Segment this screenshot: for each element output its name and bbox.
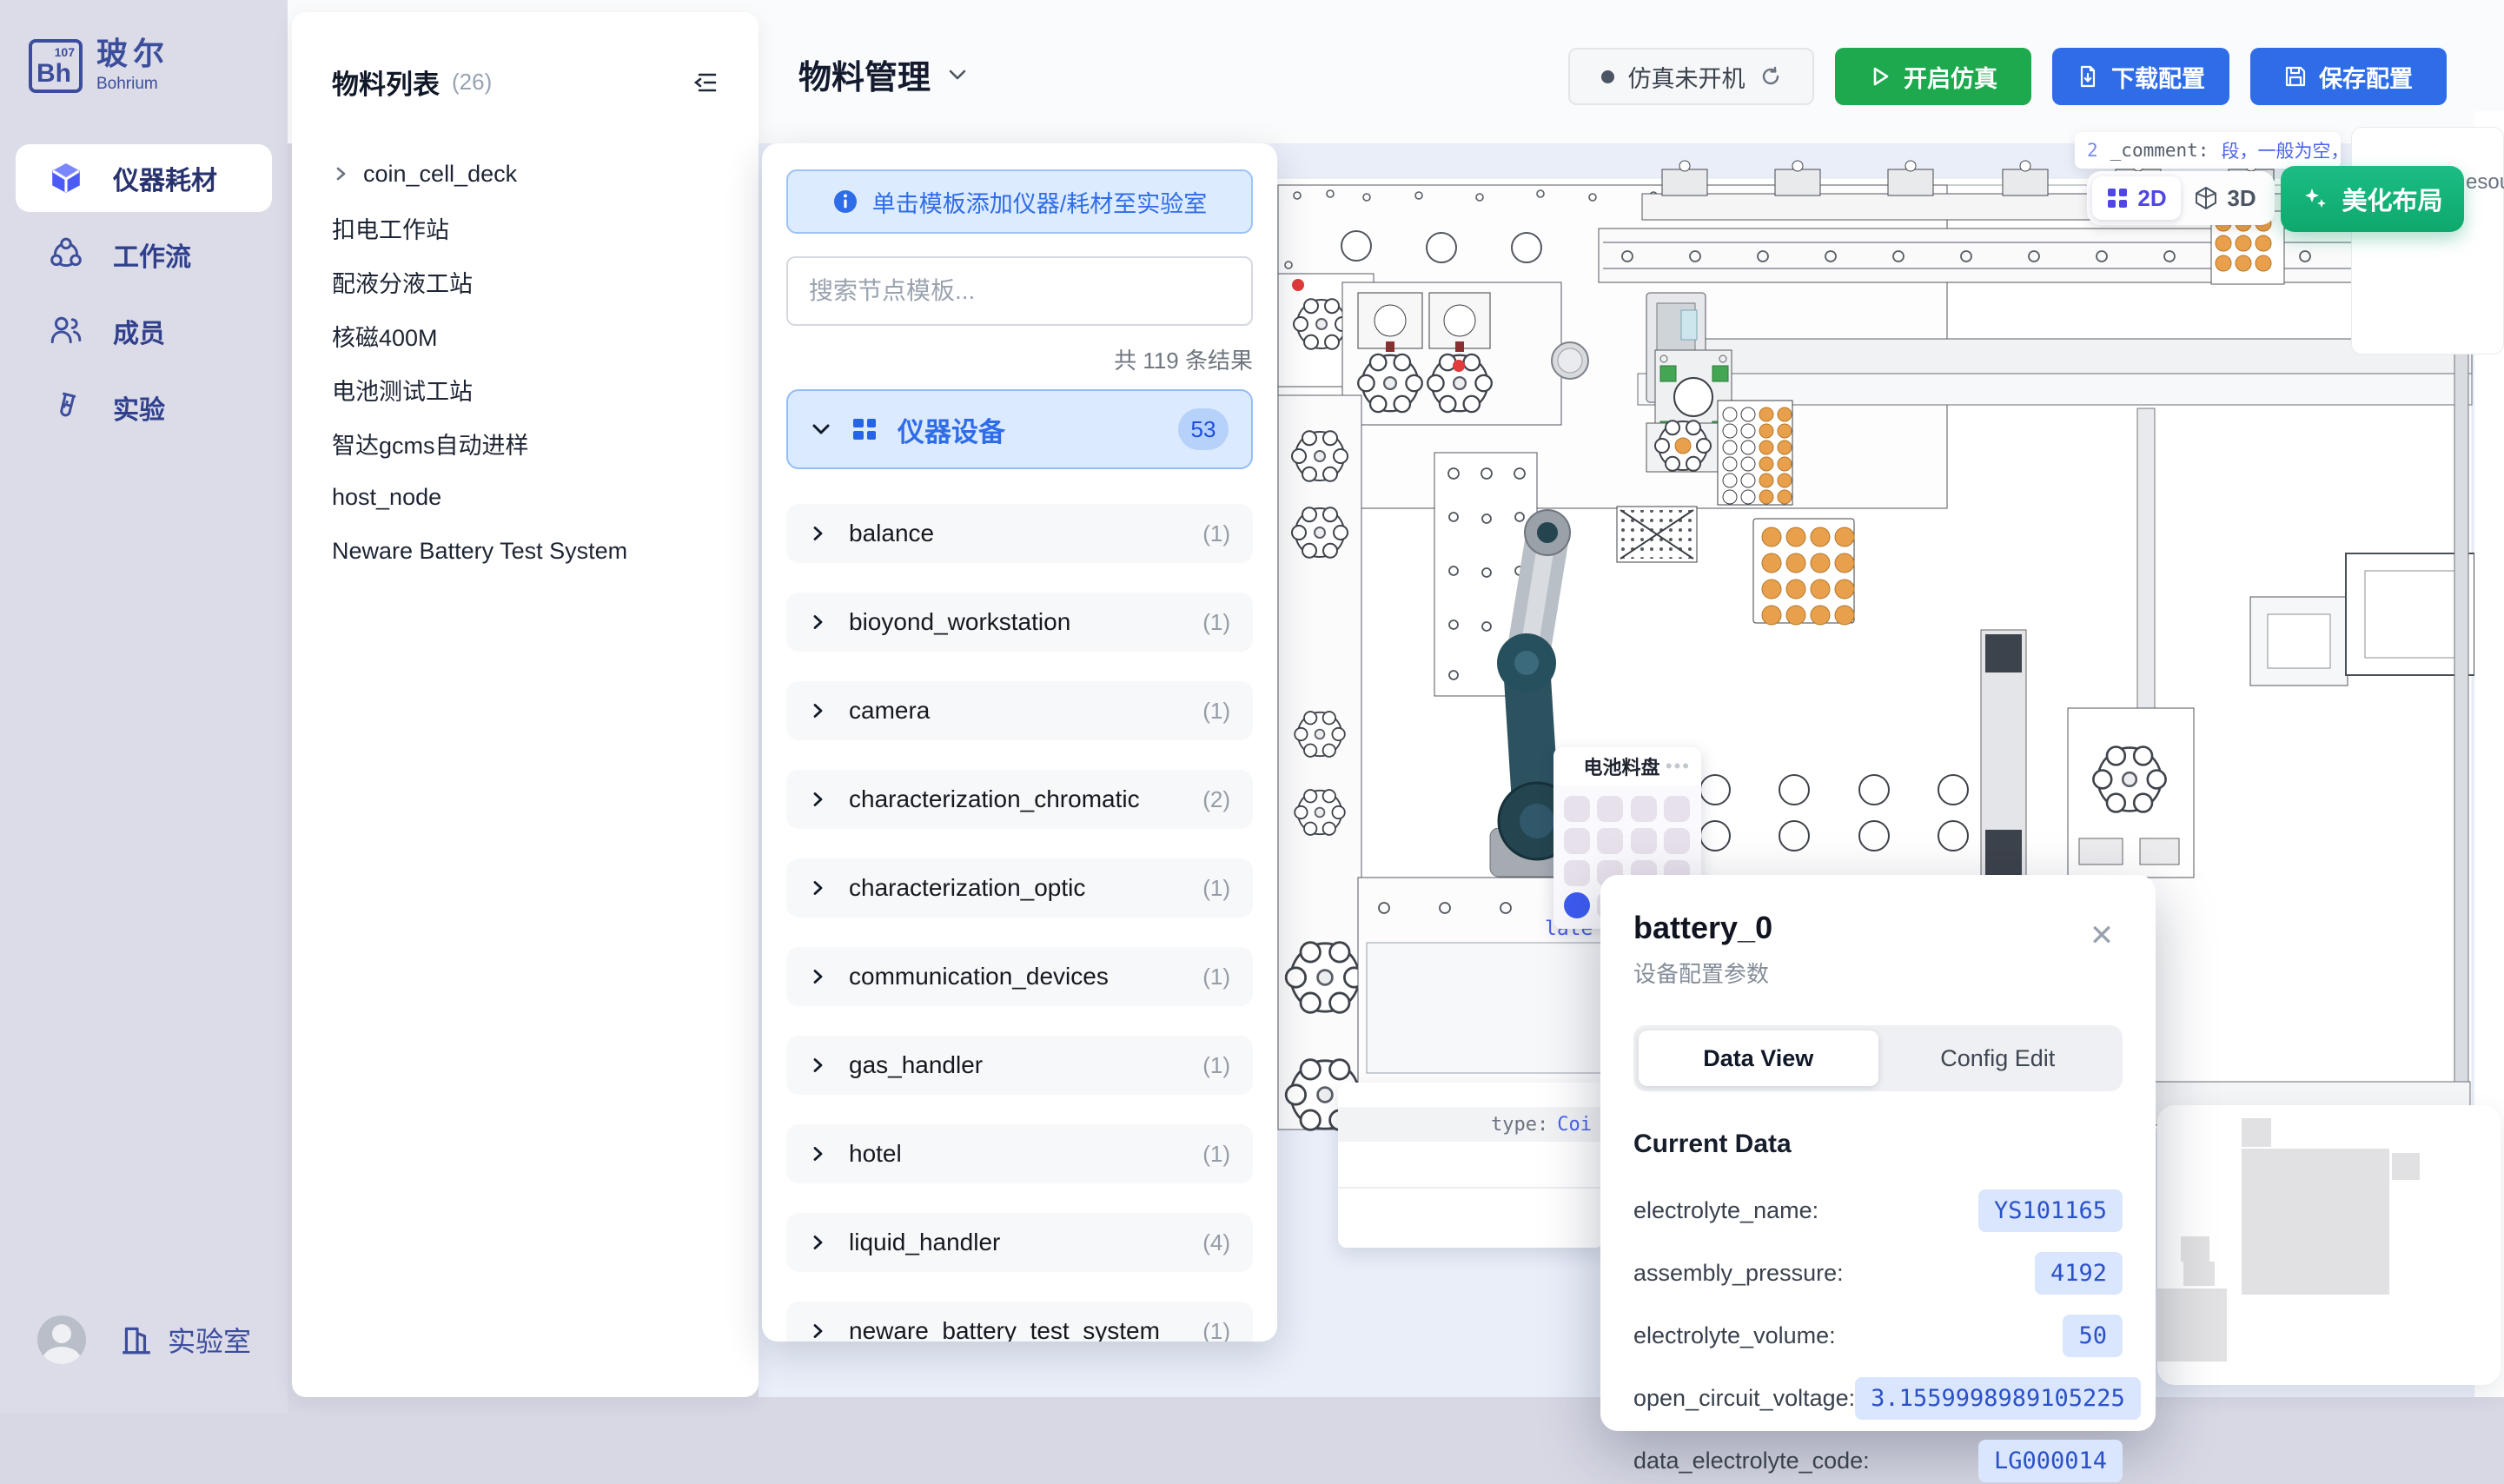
data-row-label: electrolyte_name: — [1633, 1197, 1818, 1224]
side-panel-corner — [2351, 127, 2504, 354]
toggle-3d[interactable]: 3D — [2181, 176, 2269, 220]
chevron-right-icon — [809, 1322, 826, 1340]
material-list-item[interactable]: 配液分液工站 — [332, 255, 719, 308]
template-library-panel: 单击模板添加仪器/耗材至实验室 共 119 条结果 仪器设备 53 balanc… — [762, 143, 1277, 1342]
template-category-label: bioyond_workstation — [849, 608, 1180, 636]
materials-list: coin_cell_deck 扣电工作站 配液分液工站 核磁40 — [332, 147, 719, 578]
tray-cell[interactable] — [1631, 828, 1657, 854]
toggle-3d-label: 3D — [2227, 185, 2256, 212]
data-row: electrolyte_name: YS101165 — [1633, 1187, 2123, 1234]
comment-key: _comment: — [2110, 140, 2209, 161]
data-row-label: data_electrolyte_code: — [1633, 1448, 1870, 1474]
workflow-icon — [49, 237, 83, 272]
hint-text: 单击模板添加仪器/耗材至实验室 — [872, 185, 1208, 219]
material-list-item[interactable]: host_node — [332, 470, 719, 524]
result-count: 共 119 条结果 — [786, 343, 1253, 375]
data-row-label: electrolyte_volume: — [1633, 1322, 1836, 1349]
start-simulation-label: 开启仿真 — [1904, 60, 1997, 94]
grid-2d-icon — [2106, 187, 2129, 209]
template-category-label: communication_devices — [849, 963, 1180, 990]
hover-info-card: type: Coi — [1338, 1083, 1604, 1248]
section-count-badge: 53 — [1178, 408, 1229, 450]
data-row: electrolyte_volume: 50 — [1633, 1312, 2123, 1359]
start-simulation-button[interactable]: 开启仿真 — [1835, 48, 2031, 105]
data-row: assembly_pressure: 4192 — [1633, 1249, 2123, 1296]
template-category-count: (1) — [1202, 520, 1230, 547]
material-label: 扣电工作站 — [332, 211, 449, 245]
popup-subtitle: 设备配置参数 — [1633, 957, 2123, 989]
template-category-label: characterization_chromatic — [849, 785, 1180, 813]
laboratory-link[interactable]: 实验室 — [119, 1320, 251, 1360]
sidebar-item-instruments[interactable]: 仪器耗材 — [16, 144, 272, 212]
tray-cell[interactable] — [1664, 796, 1690, 822]
template-category-item[interactable]: characterization_chromatic (2) — [786, 770, 1253, 829]
save-config-label: 保存配置 — [2319, 60, 2413, 94]
data-row-label: open_circuit_voltage: — [1633, 1385, 1855, 1412]
cube-3d-icon — [2194, 186, 2218, 210]
minimap-block — [2157, 1289, 2227, 1361]
minimap-block — [2183, 1262, 2215, 1286]
data-row: open_circuit_voltage: 3.1559998989105225 — [1633, 1375, 2123, 1421]
sidebar-item-label: 成员 — [113, 312, 165, 350]
page-title: 物料管理 — [798, 50, 931, 98]
sidebar-item-label: 仪器耗材 — [113, 159, 217, 197]
chevron-right-icon — [809, 1234, 826, 1251]
minimap-block — [2242, 1149, 2389, 1295]
tray-cell[interactable] — [1631, 796, 1657, 822]
data-row-value: LG000014 — [1978, 1440, 2123, 1482]
template-category-item[interactable]: camera (1) — [786, 681, 1253, 740]
template-category-label: neware_battery_test_system — [849, 1317, 1180, 1342]
view-mode-toggle: 2D 3D — [2087, 171, 2275, 225]
template-category-count: (1) — [1202, 1052, 1230, 1079]
data-row: data_electrolyte_code: LG000014 — [1633, 1437, 2123, 1484]
clipped-panel-text: esou — [2466, 170, 2504, 195]
brand-name-en: Bohrium — [96, 75, 169, 94]
chevron-right-icon — [809, 1145, 826, 1163]
type-row: type: Coi — [1338, 1107, 1604, 1142]
material-label: coin_cell_deck — [363, 161, 517, 188]
divider — [1338, 1187, 1604, 1189]
save-icon — [2284, 65, 2307, 88]
info-icon — [832, 189, 858, 215]
template-category-count: (4) — [1202, 1229, 1230, 1256]
tray-cell[interactable] — [1597, 796, 1623, 822]
sidebar-item-members[interactable]: 成员 — [16, 297, 272, 365]
material-label: 智达gcms自动进样 — [332, 427, 529, 460]
battery-detail-popup: ✕ battery_0 设备配置参数 Data View Config Edit… — [1600, 875, 2156, 1431]
material-list-item[interactable]: 核磁400M — [332, 308, 719, 362]
chevron-down-icon — [811, 419, 831, 440]
tab-config-edit[interactable]: Config Edit — [1878, 1030, 2118, 1086]
template-category-item[interactable]: balance (1) — [786, 504, 1253, 563]
simulation-status-badge: 仿真未开机 — [1568, 48, 1814, 105]
tray-cell[interactable] — [1564, 828, 1590, 854]
template-category-item[interactable]: gas_handler (1) — [786, 1036, 1253, 1095]
template-list: balance (1) bioyond_workstation (1) came… — [786, 504, 1253, 1342]
material-label: Neware Battery Test System — [332, 538, 627, 565]
material-list-item[interactable]: Neware Battery Test System — [332, 524, 719, 578]
materials-count: (26) — [452, 69, 692, 96]
template-category-count: (2) — [1202, 786, 1230, 813]
current-data-rows: electrolyte_name: YS101165 assembly_pres… — [1633, 1187, 2123, 1484]
chevron-right-icon — [809, 613, 826, 631]
add-template-hint-banner: 单击模板添加仪器/耗材至实验室 — [786, 169, 1253, 234]
section-instruments[interactable]: 仪器设备 53 — [786, 389, 1253, 469]
chevron-right-icon — [809, 879, 826, 897]
popup-tabs: Data View Config Edit — [1633, 1025, 2123, 1091]
line-number: 2 — [2087, 140, 2098, 161]
materials-title: 物料列表 — [332, 63, 440, 102]
user-avatar — [37, 1315, 86, 1364]
section-label: 仪器设备 — [898, 410, 1159, 449]
chevron-down-icon — [946, 63, 969, 86]
chevron-right-icon — [809, 1057, 826, 1074]
logo-symbol: Bh — [36, 59, 71, 89]
chevron-right-icon — [809, 525, 826, 542]
template-category-item[interactable]: bioyond_workstation (1) — [786, 593, 1253, 652]
material-label: host_node — [332, 484, 441, 511]
category-grid-icon — [851, 415, 878, 443]
material-list-item[interactable]: coin_cell_deck — [332, 147, 719, 201]
status-label: 仿真未开机 — [1628, 60, 1746, 94]
template-category-count: (1) — [1202, 875, 1230, 902]
type-value: Coi — [1557, 1114, 1592, 1136]
toggle-2d[interactable]: 2D — [2092, 176, 2181, 220]
beautify-label: 美化布局 — [2342, 181, 2442, 217]
save-config-button[interactable]: 保存配置 — [2250, 48, 2447, 105]
material-list-item[interactable]: 智达gcms自动进样 — [332, 416, 719, 470]
template-category-count: (1) — [1202, 698, 1230, 725]
data-row-label: assembly_pressure: — [1633, 1260, 1844, 1287]
sidebar-item-experiments[interactable]: 实验 — [16, 374, 272, 441]
type-label: type: — [1491, 1114, 1548, 1136]
toggle-2d-label: 2D — [2137, 185, 2166, 212]
brand-name-cn: 玻尔 — [96, 38, 169, 70]
template-category-count: (1) — [1202, 609, 1230, 636]
collapse-panel-icon[interactable] — [692, 70, 719, 96]
tray-cell[interactable] — [1564, 860, 1590, 886]
material-label: 配液分液工站 — [332, 265, 473, 299]
laboratory-label: 实验室 — [168, 1320, 251, 1360]
materials-panel: 物料列表 (26) coin_cell_deck 扣电工作站 — [292, 12, 758, 1397]
minimap-block — [2242, 1118, 2271, 1147]
download-config-label: 下载配置 — [2111, 60, 2205, 94]
more-icon[interactable]: ••• — [1666, 755, 1691, 778]
sparkles-icon — [2302, 185, 2329, 213]
comment-value: 段，一般为空，stat — [2221, 137, 2341, 163]
download-file-icon — [2077, 65, 2099, 88]
data-row-value: 3.1559998989105225 — [1855, 1377, 2141, 1420]
template-category-label: camera — [849, 697, 1180, 725]
template-category-item[interactable]: liquid_handler (4) — [786, 1213, 1253, 1272]
template-category-count: (1) — [1202, 1318, 1230, 1342]
status-dot-icon — [1601, 70, 1614, 83]
members-icon — [49, 314, 83, 348]
experiment-icon — [49, 390, 83, 425]
tray-cell[interactable] — [1597, 828, 1623, 854]
tray-cell-selected[interactable] — [1564, 892, 1590, 918]
template-category-label: hotel — [849, 1140, 1180, 1168]
battery-tray-title: 电池料盘 — [1564, 752, 1666, 780]
template-category-item[interactable]: neware_battery_test_system (1) — [786, 1302, 1253, 1342]
template-category-label: balance — [849, 520, 1180, 547]
template-category-label: characterization_optic — [849, 874, 1180, 902]
sidebar-item-label: 工作流 — [113, 235, 191, 274]
refresh-icon[interactable] — [1759, 65, 1782, 88]
template-category-label: liquid_handler — [849, 1229, 1180, 1256]
cube-icon — [49, 161, 83, 195]
material-list-item[interactable]: 电池测试工站 — [332, 362, 719, 416]
logo-number: 107 — [55, 45, 75, 59]
tray-cell[interactable] — [1664, 828, 1690, 854]
close-icon[interactable]: ✕ — [2086, 920, 2117, 951]
data-row-value: 50 — [2063, 1315, 2123, 1357]
bohrium-logo-icon: 107 Bh — [29, 39, 83, 93]
minimap-block — [2392, 1153, 2420, 1180]
template-category-count: (1) — [1202, 964, 1230, 990]
current-data-heading: Current Data — [1633, 1130, 2123, 1159]
template-category-item[interactable]: characterization_optic (1) — [786, 858, 1253, 918]
data-row-value: YS101165 — [1978, 1189, 2123, 1232]
minimap-block — [2181, 1236, 2209, 1262]
app-logo: 107 Bh 玻尔 Bohrium — [29, 38, 169, 94]
data-row-value: 4192 — [2035, 1252, 2123, 1295]
material-label: 电池测试工站 — [332, 373, 473, 407]
sidebar-item-label: 实验 — [113, 388, 165, 427]
material-label: 核磁400M — [332, 319, 438, 353]
tab-data-view[interactable]: Data View — [1639, 1030, 1878, 1086]
sidebar: 107 Bh 玻尔 Bohrium 仪器耗材 工作流 — [0, 0, 288, 1413]
chevron-right-icon — [809, 702, 826, 719]
play-icon — [1869, 65, 1891, 88]
page-title-dropdown[interactable]: 物料管理 — [798, 50, 969, 98]
template-category-label: gas_handler — [849, 1051, 1180, 1079]
beautify-layout-button[interactable]: 美化布局 — [2281, 166, 2464, 232]
chevron-right-icon — [809, 791, 826, 808]
minimap[interactable] — [2157, 1105, 2501, 1385]
chevron-right-icon — [809, 968, 826, 985]
template-category-item[interactable]: communication_devices (1) — [786, 947, 1253, 1006]
code-comment-tooltip: 2 _comment: 段，一般为空，stat — [2075, 132, 2341, 169]
material-list-item[interactable]: 扣电工作站 — [332, 201, 719, 255]
building-icon — [119, 1322, 154, 1357]
tray-cell[interactable] — [1564, 796, 1590, 822]
download-config-button[interactable]: 下载配置 — [2052, 48, 2229, 105]
template-category-count: (1) — [1202, 1141, 1230, 1168]
sidebar-item-workflow[interactable]: 工作流 — [16, 221, 272, 288]
template-category-item[interactable]: hotel (1) — [786, 1124, 1253, 1183]
template-search-input[interactable] — [786, 256, 1253, 326]
popup-title: battery_0 — [1633, 910, 2123, 946]
chevron-right-icon[interactable] — [332, 165, 349, 182]
